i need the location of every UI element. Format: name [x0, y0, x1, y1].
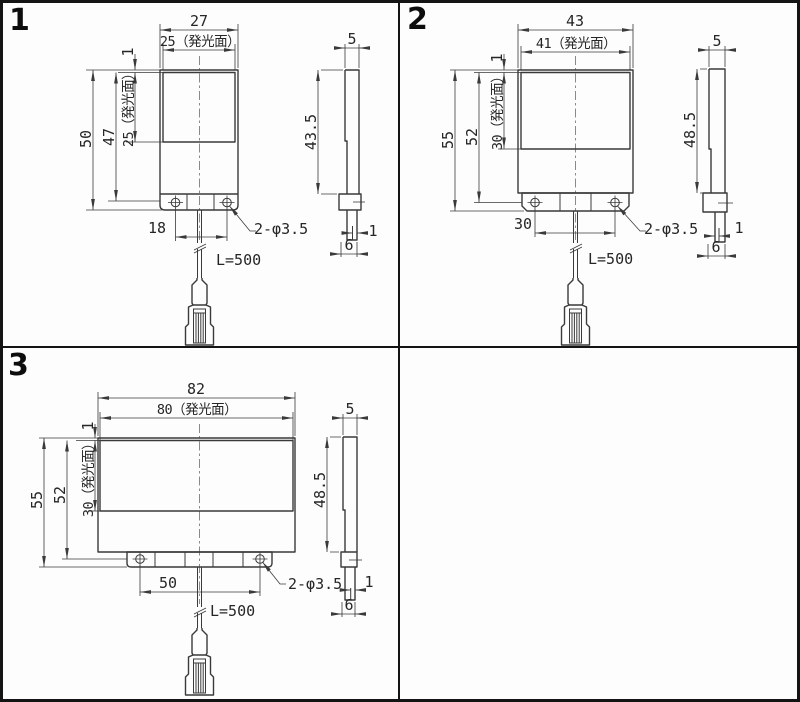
p3-flange-divisions — [155, 552, 243, 567]
p2-dim-width-emit: 41（発光面） — [536, 36, 616, 52]
p1-flange-divisions — [187, 194, 214, 210]
p3-side-dim-height: 48.5 — [311, 472, 329, 508]
p3-cable-length: L=500 — [210, 602, 255, 620]
p3-front-dimensions — [39, 392, 295, 596]
p2-dim-height-emit: 30（発光面） — [490, 70, 506, 150]
p3-dim-width-total: 82 — [187, 380, 205, 398]
p2-side-dim-width: 5 — [712, 32, 721, 50]
p3-dim-hole-pitch: 50 — [159, 574, 177, 592]
p1-front-view: 27 25（発光面） 1 25（発光面） 47 50 18 2-φ3.5 L=5… — [77, 12, 308, 345]
panel-3-drawing: 82 80（発光面） 1 30（発光面） 52 55 50 2-φ3.5 L=5… — [2, 348, 399, 700]
p2-hole-callout: 2-φ3.5 — [644, 220, 698, 238]
p3-connector — [186, 628, 214, 695]
drawing-sheet: 1 2 3 — [0, 0, 800, 702]
panel-2-drawing: 43 41（発光面） 1 30（発光面） 52 55 30 2-φ3.5 L=5… — [401, 2, 798, 347]
p2-cable — [570, 211, 582, 278]
p2-dim-gap-top: 1 — [488, 53, 506, 62]
p2-mounting-holes — [528, 196, 623, 210]
p1-side-view: 5 43.5 1 6 — [302, 30, 378, 257]
p1-dim-gap-top: 1 — [119, 47, 137, 56]
p1-side-body — [345, 70, 359, 194]
p3-connector-pins — [194, 659, 206, 693]
panel-1-drawing: 27 25（発光面） 1 25（発光面） 47 50 18 2-φ3.5 L=5… — [2, 2, 399, 347]
p2-side-body — [709, 69, 725, 193]
p3-dim-height-emit: 30（発光面） — [81, 437, 97, 517]
p2-front-view: 43 41（発光面） 1 30（発光面） 52 55 30 2-φ3.5 L=5… — [439, 12, 698, 345]
p2-side-dim-edge-gap: 1 — [734, 219, 743, 237]
p1-cable — [194, 210, 206, 278]
p1-dim-height-inner: 47 — [100, 128, 118, 146]
p2-connector — [562, 278, 590, 345]
p1-side-dim-height: 43.5 — [302, 114, 320, 150]
p2-cable-length: L=500 — [588, 250, 633, 268]
p3-dim-width-emit: 80（発光面） — [157, 402, 237, 418]
p3-side-dim-foot-width: 6 — [344, 596, 353, 614]
p2-dim-height-total: 55 — [439, 131, 457, 149]
p1-side-dim-width: 5 — [347, 30, 356, 48]
p1-emitting-area — [163, 73, 235, 143]
p3-side-body — [343, 437, 357, 552]
panel-1-number: 1 — [9, 6, 30, 36]
p3-cable — [194, 567, 206, 628]
p3-mounting-holes — [133, 552, 268, 566]
p2-dim-hole-pitch: 30 — [514, 215, 532, 233]
p3-front-view: 82 80（発光面） 1 30（発光面） 52 55 50 2-φ3.5 L=5… — [28, 380, 342, 695]
p1-dim-height-total: 50 — [77, 130, 95, 148]
p1-body-outline — [160, 70, 238, 210]
panel-2-number: 2 — [407, 5, 428, 35]
p1-side-dim-edge-gap: 1 — [368, 222, 377, 240]
p2-dim-height-inner: 52 — [463, 128, 481, 146]
grid-horizontal-divider — [0, 346, 800, 348]
p1-dim-width-emit: 25（発光面） — [160, 34, 240, 50]
p3-dim-height-total: 55 — [28, 491, 46, 509]
p3-side-dim-width: 5 — [345, 400, 354, 418]
p1-mounting-holes — [168, 196, 235, 210]
p3-dim-gap-top: 1 — [79, 421, 97, 430]
p3-side-dim-edge-gap: 1 — [364, 573, 373, 591]
p1-cable-length: L=500 — [216, 251, 261, 269]
p3-side-flange — [341, 552, 357, 567]
p1-dim-hole-pitch: 18 — [148, 219, 166, 237]
p1-dim-height-emit: 25（発光面） — [121, 67, 137, 147]
panel-3-number: 3 — [8, 351, 29, 381]
p2-side-dim-foot-width: 6 — [711, 238, 720, 256]
empty-cell — [401, 349, 798, 700]
p1-dim-width-total: 27 — [190, 12, 208, 30]
grid-vertical-divider — [398, 0, 400, 702]
p3-hole-callout: 2-φ3.5 — [288, 575, 342, 593]
p1-connector — [186, 278, 214, 345]
p2-side-dim-height: 48.5 — [681, 112, 699, 148]
p2-dim-width-total: 43 — [566, 12, 584, 30]
p3-body-outline — [98, 438, 295, 552]
p3-emitting-area — [100, 441, 293, 512]
p2-connector-pins — [570, 309, 582, 343]
p2-side-flange — [703, 193, 727, 212]
p1-connector-pins — [194, 309, 206, 343]
p1-side-dim-foot-width: 6 — [344, 236, 353, 254]
p3-dim-height-inner: 52 — [51, 486, 69, 504]
p1-hole-callout: 2-φ3.5 — [254, 220, 308, 238]
